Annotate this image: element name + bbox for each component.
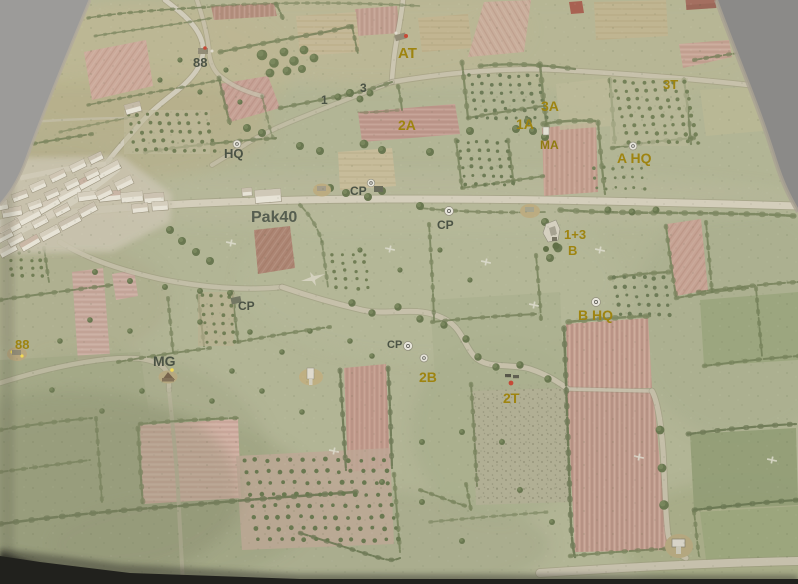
svg-text:A HQ: A HQ	[617, 150, 652, 166]
svg-text:2A: 2A	[398, 117, 416, 133]
svg-text:MG: MG	[153, 353, 176, 369]
svg-text:Pak40: Pak40	[251, 209, 297, 226]
svg-text:88: 88	[193, 55, 207, 70]
svg-text:CP: CP	[437, 218, 454, 232]
svg-text:88: 88	[15, 337, 29, 352]
svg-text:CP: CP	[387, 339, 402, 351]
svg-text:MA: MA	[540, 138, 559, 152]
svg-text:3: 3	[360, 81, 367, 95]
svg-text:CP: CP	[238, 299, 255, 313]
svg-text:HQ: HQ	[224, 146, 244, 161]
svg-text:B: B	[568, 243, 577, 258]
svg-text:3A: 3A	[541, 98, 559, 114]
svg-text:1A: 1A	[516, 116, 534, 132]
svg-text:1: 1	[321, 93, 328, 107]
svg-text:1+3: 1+3	[564, 227, 586, 242]
svg-text:2B: 2B	[419, 369, 437, 385]
svg-text:2T: 2T	[503, 390, 520, 406]
svg-text:3T: 3T	[663, 77, 678, 92]
svg-text:CP: CP	[350, 184, 367, 198]
svg-text:B HQ: B HQ	[578, 307, 613, 323]
svg-text:AT: AT	[398, 45, 417, 62]
